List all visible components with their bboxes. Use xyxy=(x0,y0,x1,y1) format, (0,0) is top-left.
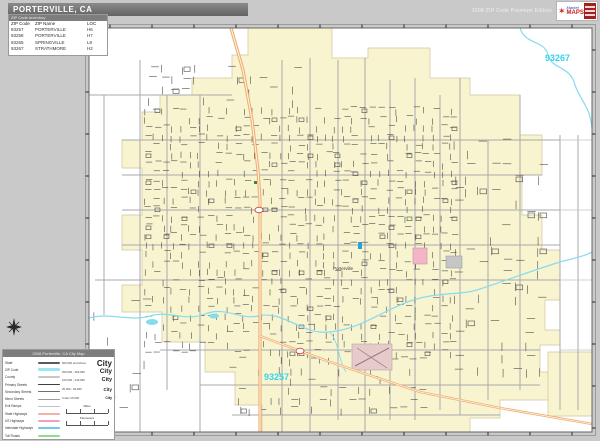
population-range-label: 500,000 and Above xyxy=(62,361,96,365)
compass-rose-icon xyxy=(6,318,22,336)
zip-code-table: ZIP Code Inventory ZIP CodeZIP NameLOC93… xyxy=(8,14,108,56)
legend-item: Secondary Streets xyxy=(5,388,60,395)
legend-title: 2008 Porterville, CA City Map xyxy=(3,350,114,357)
legend-item-label: County xyxy=(5,375,38,379)
legend-item: Minor Streets xyxy=(5,395,60,402)
legend-line-sample xyxy=(38,362,60,364)
legend-item-label: Minor Streets xyxy=(5,397,38,401)
legend-city-size-row: 25,000 - 99,999City xyxy=(62,385,112,394)
highway-shield-icon xyxy=(255,207,263,213)
gray-landmark-block xyxy=(446,256,462,268)
legend-item-label: US Highways xyxy=(5,419,38,423)
legend-item: State xyxy=(5,359,60,366)
pond-marker xyxy=(358,242,362,249)
publisher-logo: ✶ Market MAPS xyxy=(556,1,598,21)
population-range-label: 250,000 - 499,999 xyxy=(62,370,99,374)
legend-item: County xyxy=(5,374,60,381)
legend-item: Interstate Highways xyxy=(5,425,60,432)
city-size-sample: City xyxy=(105,396,112,400)
legend-line-sample xyxy=(38,376,60,378)
legend-item-label: ZIP Code xyxy=(5,368,38,372)
zip-label-93267: 93267 xyxy=(545,53,570,63)
city-size-sample: City xyxy=(97,359,112,368)
city-size-sample: City xyxy=(102,377,112,383)
legend-line-sample xyxy=(38,391,60,392)
scale-bar: Miles xyxy=(62,404,112,414)
legend-line-items: StateZIP CodeCountyPrimary StreetsSecond… xyxy=(3,357,62,439)
cell: 93267 xyxy=(11,46,35,52)
city-size-sample: City xyxy=(100,368,112,375)
legend-city-size-row: Under 25,000City xyxy=(62,393,112,402)
legend-item: US Highways xyxy=(5,417,60,424)
edition-label: 2008 ZIP Code Premium Edition xyxy=(472,8,552,14)
zip-region-southeast xyxy=(548,352,592,416)
population-range-label: 100,000 - 249,999 xyxy=(62,378,101,382)
legend-line-sample xyxy=(38,420,60,422)
legend-item-label: Secondary Streets xyxy=(5,390,38,394)
legend-line-sample xyxy=(38,399,60,400)
legend-line-sample xyxy=(38,427,60,429)
legend-city-size-row: 500,000 and AboveCity xyxy=(62,359,112,368)
legend-item-label: Primary Streets xyxy=(5,383,38,387)
legend-line-sample xyxy=(38,406,60,407)
legend-item-label: Exit Ramps xyxy=(5,404,38,408)
legend-line-sample xyxy=(38,384,60,386)
legend-item: State Highways xyxy=(5,410,60,417)
logo-side-block xyxy=(584,3,596,19)
legend-item-label: State xyxy=(5,361,38,365)
scale-bar: Kilometers xyxy=(62,416,112,426)
legend-item-label: Interstate Highways xyxy=(5,426,38,430)
legend-item: ZIP Code xyxy=(5,366,60,373)
legend-item: Exit Ramps xyxy=(5,403,60,410)
legend-city-sizes: 500,000 and AboveCity250,000 - 499,999Ci… xyxy=(62,357,114,439)
map-content: Porterville9326793257 xyxy=(89,28,592,432)
legend-line-sample xyxy=(38,368,60,371)
map-sheet-page: Porterville9326793257 PORTERVILLE, CA 20… xyxy=(0,0,600,441)
legend-item: Primary Streets xyxy=(5,381,60,388)
map-legend: 2008 Porterville, CA City Map StateZIP C… xyxy=(2,349,115,440)
legend-item-label: Toll Roads xyxy=(5,434,38,438)
legend-item: Toll Roads xyxy=(5,432,60,439)
cell: STRATHMORE xyxy=(35,46,87,52)
legend-city-size-row: 100,000 - 249,999City xyxy=(62,376,112,385)
pink-landmark-block xyxy=(413,248,427,264)
highway-shield-icon xyxy=(296,348,304,354)
population-range-label: Under 25,000 xyxy=(62,396,104,400)
legend-item-label: State Highways xyxy=(5,412,38,416)
city-size-sample: City xyxy=(103,387,112,392)
zip-table-row: 93267STRATHMOREH2 xyxy=(9,46,107,52)
legend-city-size-row: 250,000 - 499,999City xyxy=(62,368,112,377)
city-label-porterville: Porterville xyxy=(333,266,354,271)
scale-bar-rule xyxy=(66,420,108,426)
legend-line-sample xyxy=(38,413,60,415)
legend-line-sample xyxy=(38,435,60,437)
green-poi-marker xyxy=(254,181,257,184)
population-range-label: 25,000 - 99,999 xyxy=(62,387,102,391)
zip-label-93257: 93257 xyxy=(264,372,289,382)
logo-star-icon: ✶ xyxy=(558,7,566,16)
scale-bar-rule xyxy=(66,408,108,414)
logo-brand-bottom: MAPS xyxy=(567,10,584,16)
cell: H2 xyxy=(87,46,103,52)
